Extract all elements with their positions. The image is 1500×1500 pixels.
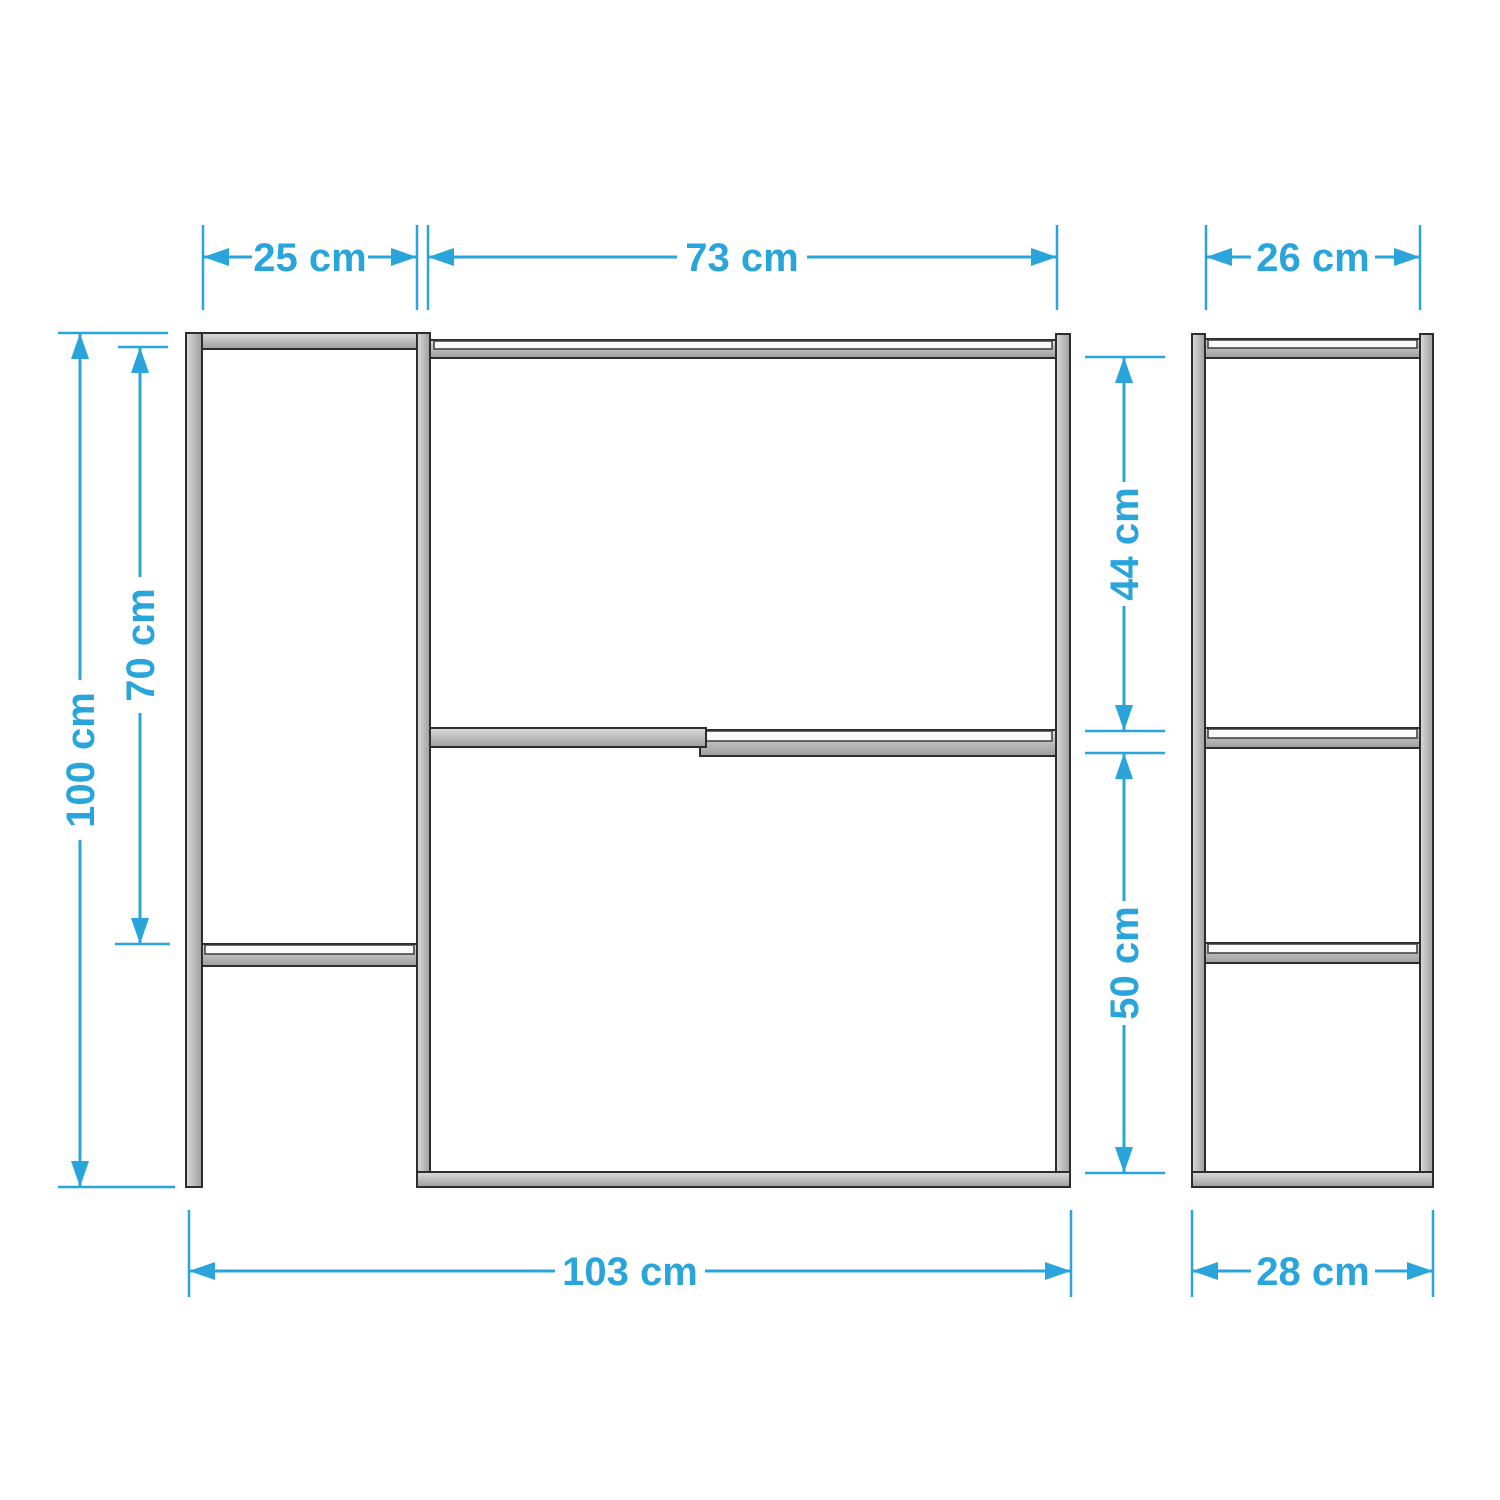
arrowhead-left (1206, 248, 1232, 266)
dimension-overall-height: 100 cm (58, 333, 175, 1187)
front-left-shelf-highlight (205, 945, 414, 954)
front-middle-shelf-right-highlight (706, 731, 1052, 741)
front-left-post (186, 333, 202, 1187)
arrowhead-up (71, 333, 89, 359)
dimension-overall-width: 103 cm (189, 1210, 1071, 1297)
dimension-label: 70 cm (119, 588, 163, 701)
dimension-label: 73 cm (685, 236, 798, 280)
arrowhead-right (391, 248, 417, 266)
arrowhead-left (428, 248, 454, 266)
dimension-side-depth: 28 cm (1192, 1210, 1433, 1297)
dimension-top-main-width: 73 cm (428, 225, 1057, 310)
arrowhead-down (71, 1161, 89, 1187)
dimension-label: 103 cm (562, 1250, 698, 1294)
arrowhead-down (1115, 705, 1133, 731)
dimension-label: 28 cm (1256, 1250, 1369, 1294)
arrowhead-left (189, 1262, 215, 1280)
rotated-label: 50 cm (1102, 901, 1147, 1025)
rotated-label: 70 cm (118, 577, 163, 713)
arrowhead-right (1045, 1262, 1071, 1280)
dimension-top-left-width: 25 cm (203, 225, 417, 310)
front-middle-shelf-left-segment (418, 728, 706, 747)
dimension-diagram-page: 25 cm 73 cm 26 cm 100 cm (0, 0, 1500, 1500)
arrowhead-left (203, 248, 229, 266)
side-left-post (1192, 334, 1205, 1187)
arrowhead-up (131, 347, 149, 373)
dimension-left-shelf-height: 70 cm (115, 347, 170, 944)
arrowhead-right (1407, 1262, 1433, 1280)
side-middle-rail-upper-highlight (1208, 729, 1417, 738)
rotated-label: 44 cm (1102, 482, 1147, 606)
side-right-post (1420, 334, 1433, 1187)
front-top-left-rail (186, 333, 430, 349)
front-top-main-rail-highlight (434, 341, 1052, 349)
front-view (186, 333, 1070, 1187)
arrowhead-right (1394, 248, 1420, 266)
front-right-post (1056, 334, 1070, 1187)
arrowhead-down (1115, 1147, 1133, 1173)
arrowhead-left (1192, 1262, 1218, 1280)
front-middle-post (417, 333, 430, 1187)
side-middle-rail-lower-highlight (1208, 944, 1417, 953)
dimension-label: 50 cm (1103, 906, 1147, 1019)
side-top-rail-highlight (1208, 340, 1417, 348)
front-bottom-rail (417, 1172, 1070, 1187)
arrowhead-up (1115, 357, 1133, 383)
dimension-upper-section-height: 44 cm (1085, 357, 1165, 731)
arrowhead-right (1031, 248, 1057, 266)
side-view (1192, 334, 1433, 1187)
dimension-label: 25 cm (253, 236, 366, 280)
dimension-lower-section-height: 50 cm (1085, 753, 1165, 1173)
dimension-label: 100 cm (59, 692, 103, 828)
dimension-side-top-width: 26 cm (1206, 225, 1420, 310)
side-bottom-rail (1192, 1172, 1433, 1187)
arrowhead-up (1115, 753, 1133, 779)
dimension-label: 44 cm (1103, 487, 1147, 600)
dimension-label: 26 cm (1256, 236, 1369, 280)
dimension-diagram: 25 cm 73 cm 26 cm 100 cm (0, 0, 1500, 1500)
rotated-label: 100 cm (58, 680, 103, 840)
arrowhead-down (131, 918, 149, 944)
